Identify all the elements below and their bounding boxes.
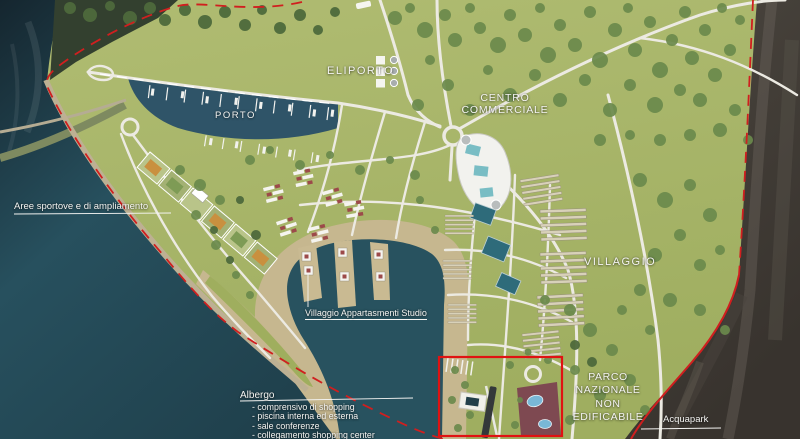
label-villaggio: VILLAGGIO xyxy=(584,256,656,269)
label-parco-line1: PARCO xyxy=(548,371,668,384)
label-parco-line4: EDIFICABILE xyxy=(548,411,668,424)
albergo-item: - collegamento shopping center xyxy=(252,431,375,439)
albergo-feature-list: - comprensivo di shopping - piscina inte… xyxy=(252,403,375,439)
label-albergo-title: Albergo xyxy=(240,390,274,402)
label-centro-line2: COMMERCIALE xyxy=(455,104,555,116)
label-porto: PORTO xyxy=(215,111,256,122)
label-acquapark: Acquapark xyxy=(663,415,708,426)
label-centro-commerciale: CENTRO COMMERCIALE xyxy=(455,92,555,116)
label-centro-line1: CENTRO xyxy=(455,92,555,104)
label-parco-line3: NON xyxy=(548,398,668,411)
label-parco: PARCO NAZIONALE NON EDIFICABILE xyxy=(548,371,668,425)
label-parco-line2: NAZIONALE xyxy=(548,384,668,397)
map-graphic xyxy=(0,0,800,439)
label-eliporto: ELIPORTO xyxy=(327,65,394,78)
label-villaggio-appartamenti: Villaggio Appartasmenti Studio xyxy=(305,308,427,320)
label-aree-sportive: Aree sportove e di ampliamento xyxy=(14,202,148,213)
masterplan-map: ELIPORTO PORTO CENTRO COMMERCIALE VILLAG… xyxy=(0,0,800,439)
